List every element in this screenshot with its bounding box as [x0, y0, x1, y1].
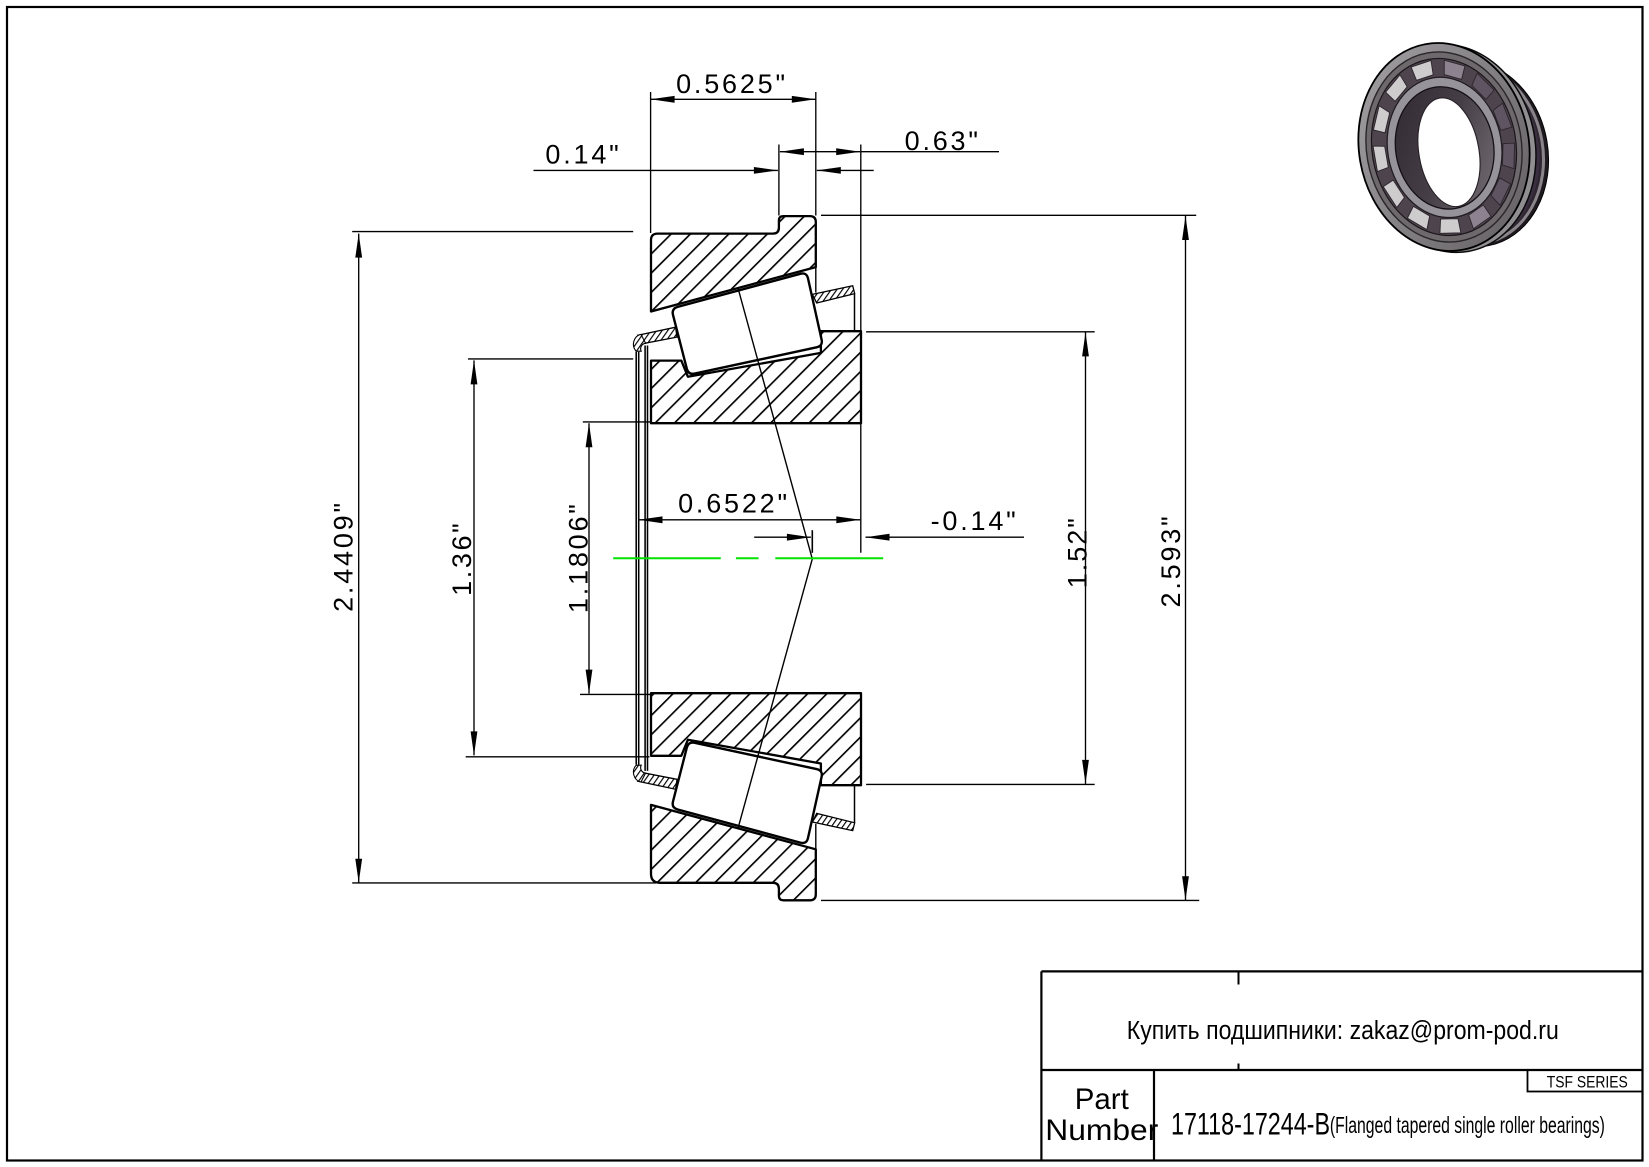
svg-text:0.6522": 0.6522": [678, 489, 790, 519]
svg-text:2.593": 2.593": [1156, 514, 1186, 608]
svg-text:17118-17244-B: 17118-17244-B: [1171, 1106, 1330, 1142]
svg-text:1.36": 1.36": [447, 521, 477, 596]
svg-text:TSF SERIES: TSF SERIES: [1547, 1073, 1628, 1092]
svg-text:Number: Number: [1045, 1114, 1158, 1147]
svg-text:(Flanged tapered single roller: (Flanged tapered single roller bearings): [1330, 1112, 1605, 1138]
svg-text:1.1806": 1.1806": [564, 501, 594, 613]
svg-text:Part: Part: [1075, 1083, 1130, 1116]
svg-text:Купить подшипники: zakaz@prom-: Купить подшипники: zakaz@prom-pod.ru: [1127, 1017, 1559, 1045]
svg-text:0.63": 0.63": [905, 126, 981, 156]
svg-text:1.52": 1.52": [1063, 516, 1093, 588]
svg-text:0.14": 0.14": [545, 140, 621, 170]
svg-text:-0.14": -0.14": [931, 506, 1019, 536]
svg-text:2.4409": 2.4409": [329, 500, 359, 612]
svg-text:0.5625": 0.5625": [676, 69, 788, 99]
